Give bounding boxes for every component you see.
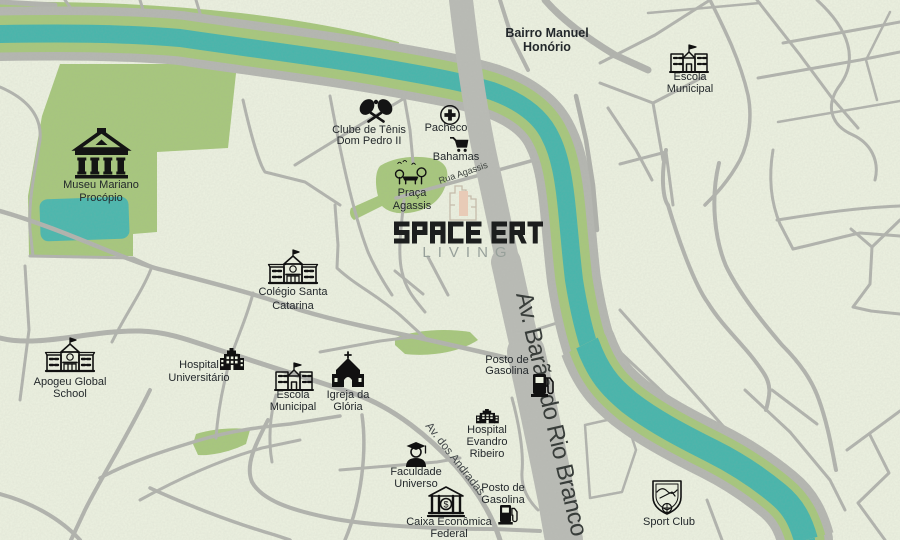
svg-text:Hospital: Hospital [179,359,219,371]
svg-text:Gasolina: Gasolina [481,494,525,506]
svg-text:Faculdade: Faculdade [390,466,441,478]
svg-text:Colégio Santa: Colégio Santa [258,286,328,298]
svg-text:Praça: Praça [398,187,428,199]
svg-text:Universitário: Universitário [168,372,229,384]
svg-text:Federal: Federal [430,528,467,540]
svg-text:Museu Mariano: Museu Mariano [63,179,139,191]
svg-text:Apogeu Global: Apogeu Global [34,376,107,388]
svg-text:Bahamas: Bahamas [433,151,480,163]
svg-text:Igreja da: Igreja da [327,389,371,401]
svg-text:Honório: Honório [523,40,571,54]
svg-text:$: $ [443,500,448,510]
svg-text:Posto de: Posto de [481,482,524,494]
svg-text:Sport Club: Sport Club [643,516,695,528]
svg-text:Ribeiro: Ribeiro [470,448,505,460]
svg-text:Municipal: Municipal [667,83,713,95]
svg-text:Gasolina: Gasolina [485,365,529,377]
svg-text:Dom Pedro II: Dom Pedro II [337,135,402,147]
svg-text:Bairro Manuel: Bairro Manuel [505,26,588,40]
svg-text:Glória: Glória [333,401,363,413]
svg-text:Evandro: Evandro [467,436,508,448]
svg-text:School: School [53,388,87,400]
svg-text:Municipal: Municipal [270,401,316,413]
svg-text:Hospital: Hospital [467,424,507,436]
svg-text:Procópio: Procópio [79,192,122,204]
svg-text:Universo: Universo [394,478,437,490]
svg-text:Caixa Econômica: Caixa Econômica [406,516,492,528]
svg-text:Catarina: Catarina [272,300,314,312]
svg-text:Agassis: Agassis [393,200,432,212]
svg-text:LIVING: LIVING [422,244,513,261]
